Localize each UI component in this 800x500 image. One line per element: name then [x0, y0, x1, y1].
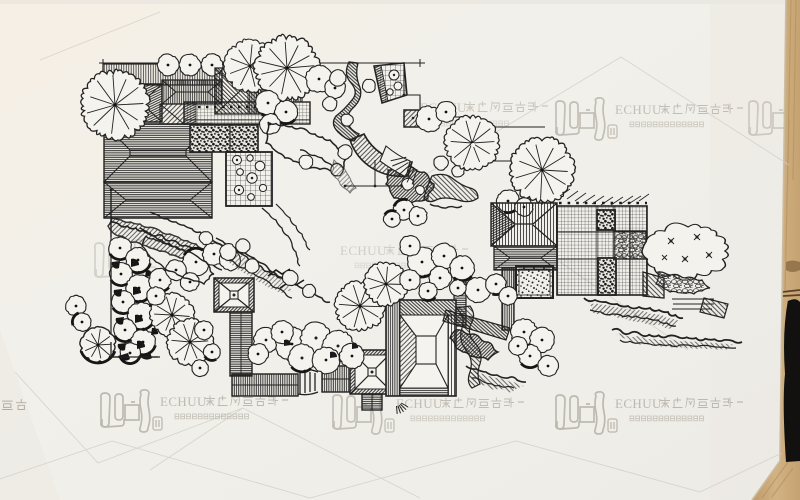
svg-text:ECHUU: ECHUU: [340, 243, 387, 258]
svg-text:ECHUU: ECHUU: [160, 394, 207, 409]
svg-text:ECHUU: ECHUU: [615, 396, 662, 411]
svg-text:ECHUU: ECHUU: [615, 102, 662, 117]
